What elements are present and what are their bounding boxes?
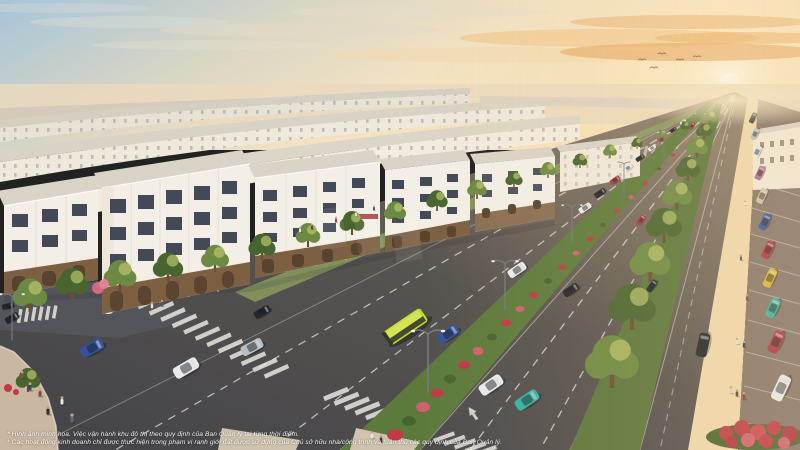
warm-light-overlay xyxy=(420,0,800,450)
legal-disclaimer: * Hình ảnh minh họa. Việc vận hành khu đ… xyxy=(7,431,502,448)
township-aerial-render: * Hình ảnh minh họa. Việc vận hành khu đ… xyxy=(0,0,800,450)
disclaimer-line-2: * Các hoạt động kinh doanh chỉ được thực… xyxy=(7,439,502,448)
scene-canvas xyxy=(0,0,800,450)
